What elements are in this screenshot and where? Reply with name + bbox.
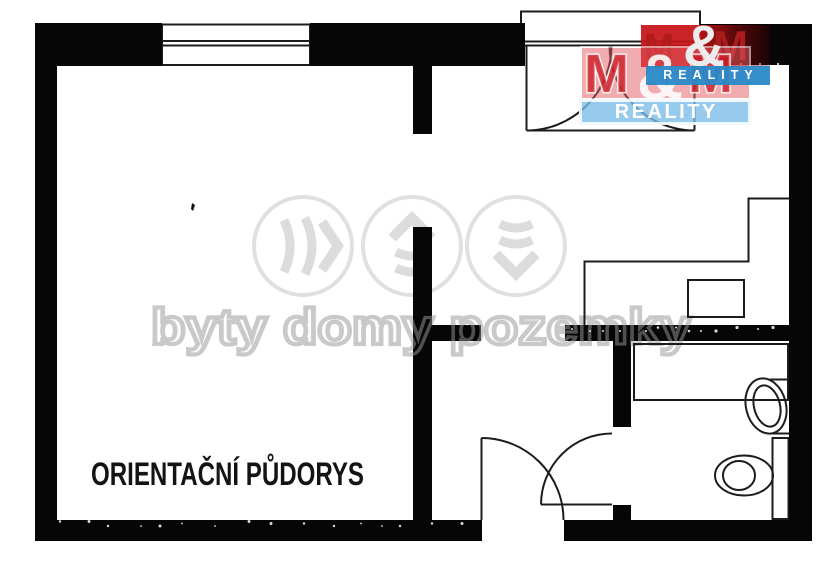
svg-text:ORIENTAČNÍ PŮDORYS: ORIENTAČNÍ PŮDORYS xyxy=(91,454,364,492)
